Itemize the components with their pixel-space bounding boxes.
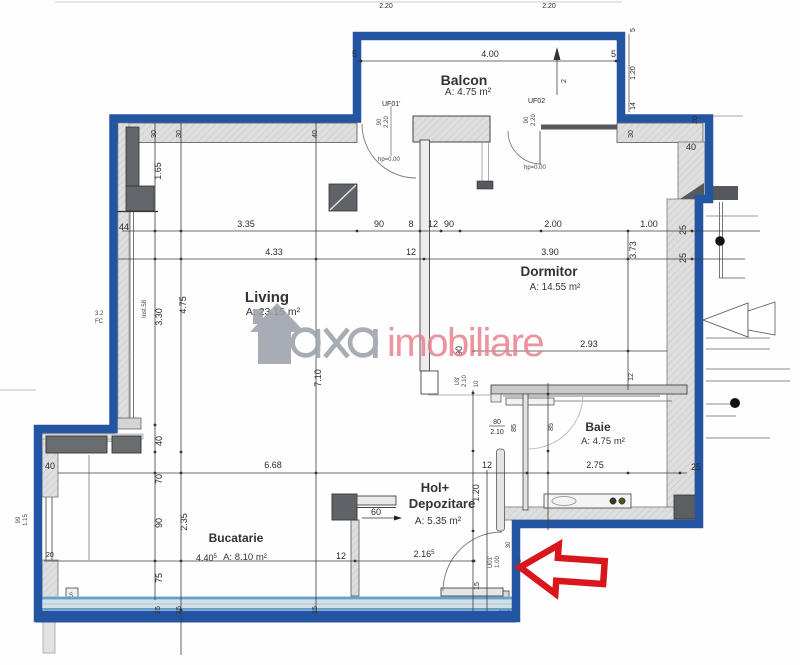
svg-text:1.65: 1.65	[153, 162, 163, 180]
svg-text:6.68: 6.68	[264, 460, 282, 470]
svg-text:40: 40	[686, 142, 696, 152]
svg-text:2.35: 2.35	[179, 513, 189, 531]
svg-text:90: 90	[154, 518, 164, 528]
svg-text:U01': U01'	[488, 556, 494, 568]
svg-text:2.00: 2.00	[544, 219, 562, 229]
svg-text:25: 25	[678, 225, 688, 235]
svg-text:2.10: 2.10	[462, 375, 468, 387]
svg-text:4.75: 4.75	[178, 296, 188, 314]
svg-text:Inst.58: Inst.58	[142, 299, 148, 318]
svg-text:3.35: 3.35	[237, 219, 255, 229]
svg-text:FC: FC	[95, 319, 104, 325]
svg-text:5: 5	[630, 28, 637, 32]
svg-text:2.93: 2.93	[580, 339, 598, 349]
svg-text:25: 25	[678, 253, 688, 263]
svg-text:Depozitare: Depozitare	[409, 496, 475, 511]
svg-text:80: 80	[493, 419, 501, 426]
svg-text:90: 90	[524, 116, 530, 123]
svg-text:2.20: 2.20	[542, 3, 556, 10]
svg-text:hp=0.00: hp=0.00	[378, 157, 401, 163]
svg-text:25: 25	[691, 462, 701, 472]
svg-text:5: 5	[611, 49, 616, 59]
svg-text:1.00: 1.00	[640, 219, 658, 229]
svg-text:20: 20	[692, 116, 699, 124]
svg-text:25: 25	[155, 606, 162, 614]
svg-text:2: 2	[561, 79, 568, 83]
svg-text:25: 25	[176, 606, 183, 614]
svg-text:2.20: 2.20	[379, 3, 393, 10]
svg-text:3.30: 3.30	[154, 308, 164, 326]
svg-text:A: 8.10 m²: A: 8.10 m²	[223, 552, 267, 563]
svg-text:3.73: 3.73	[628, 241, 638, 259]
svg-text:25: 25	[312, 606, 319, 614]
svg-text:imobiliare: imobiliare	[387, 321, 543, 365]
svg-text:Bucatarie: Bucatarie	[209, 531, 264, 545]
svg-text:3.90: 3.90	[541, 247, 559, 257]
svg-text:A: 5.35 m²: A: 5.35 m²	[415, 516, 462, 527]
svg-text:hp=0.00: hp=0.00	[524, 165, 547, 171]
svg-text:30: 30	[176, 130, 183, 138]
svg-text:4.33: 4.33	[265, 247, 283, 257]
svg-text:44: 44	[119, 222, 129, 232]
svg-text:10: 10	[474, 380, 480, 387]
svg-text:7.10: 7.10	[313, 369, 323, 387]
svg-text:12: 12	[482, 460, 492, 470]
svg-text:15: 15	[474, 582, 481, 590]
svg-text:40: 40	[154, 436, 164, 446]
svg-text:90: 90	[374, 219, 384, 229]
svg-text:Hol+: Hol+	[421, 480, 450, 495]
svg-text:40: 40	[45, 461, 55, 471]
svg-text:20: 20	[46, 552, 54, 559]
svg-text:Balcon: Balcon	[441, 72, 488, 88]
svg-text:3.2: 3.2	[95, 311, 104, 317]
svg-text:85: 85	[511, 424, 518, 432]
svg-text:14: 14	[630, 102, 637, 110]
svg-text:U3': U3'	[455, 377, 461, 386]
svg-text:2.20: 2.20	[384, 116, 390, 128]
svg-text:85: 85	[548, 423, 555, 431]
svg-text:12: 12	[428, 219, 438, 229]
svg-text:Living: Living	[245, 289, 289, 306]
svg-text:12: 12	[628, 373, 635, 381]
svg-text:Baie: Baie	[585, 420, 611, 434]
svg-text:4.00: 4.00	[481, 49, 499, 59]
svg-text:A: 14.55 m²: A: 14.55 m²	[530, 282, 581, 293]
svg-text:1.15: 1.15	[23, 514, 29, 526]
svg-text:UF02: UF02	[528, 98, 545, 105]
svg-text:40: 40	[312, 130, 319, 138]
svg-text:1.00: 1.00	[495, 556, 501, 568]
svg-text:90: 90	[377, 118, 383, 125]
svg-text:2.75: 2.75	[586, 460, 604, 470]
svg-text:30: 30	[151, 130, 158, 138]
svg-text:99: 99	[16, 516, 22, 523]
svg-text:60: 60	[371, 507, 381, 517]
svg-text:12: 12	[336, 551, 346, 561]
svg-text:A: 4.75 m²: A: 4.75 m²	[581, 436, 625, 447]
svg-text:8: 8	[408, 219, 413, 229]
svg-text:30: 30	[628, 130, 635, 138]
svg-text:A: 4.75 m²: A: 4.75 m²	[445, 87, 492, 98]
svg-text:90: 90	[444, 219, 454, 229]
svg-text:70: 70	[154, 474, 164, 484]
svg-text:Dormitor: Dormitor	[521, 264, 579, 279]
svg-text:5: 5	[352, 49, 357, 59]
svg-text:2.10: 2.10	[490, 429, 504, 436]
svg-text:1.20: 1.20	[630, 66, 637, 80]
svg-text:2.20: 2.20	[531, 114, 537, 126]
svg-text:12: 12	[406, 247, 416, 257]
svg-text:UF01': UF01'	[382, 101, 400, 108]
svg-text:30: 30	[506, 541, 512, 548]
svg-text:75: 75	[154, 573, 164, 583]
